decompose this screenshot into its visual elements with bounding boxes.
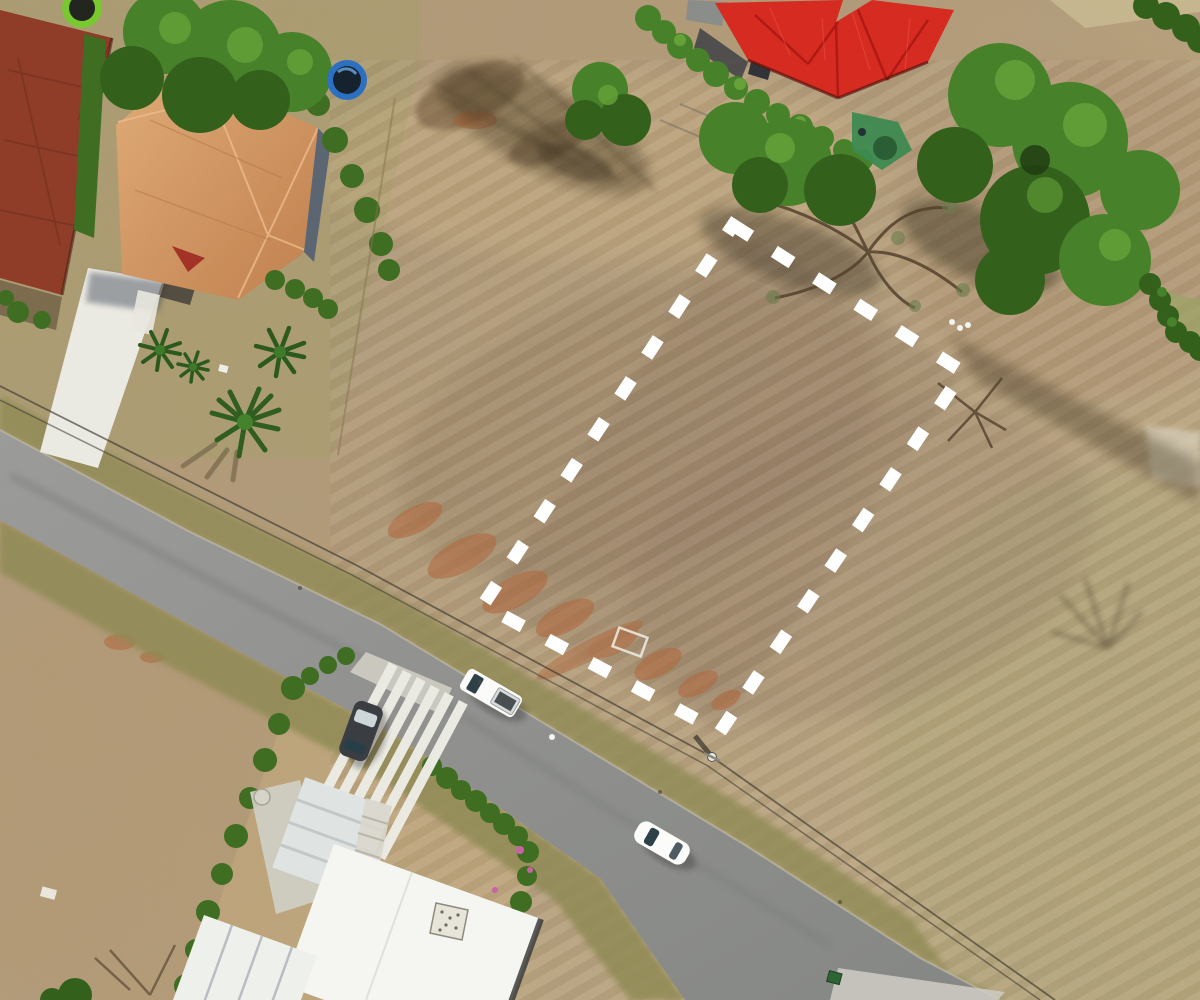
small-item (858, 128, 866, 136)
roadside-marker (549, 734, 555, 740)
aerial-photo-canvas (0, 0, 1200, 1000)
concrete-disc (254, 789, 270, 805)
canopy-gap (1020, 145, 1050, 175)
round-pool (327, 60, 367, 100)
aerial-photo (0, 0, 1200, 1000)
shadow-on-slab (873, 136, 897, 160)
gravel-pad (430, 903, 468, 940)
